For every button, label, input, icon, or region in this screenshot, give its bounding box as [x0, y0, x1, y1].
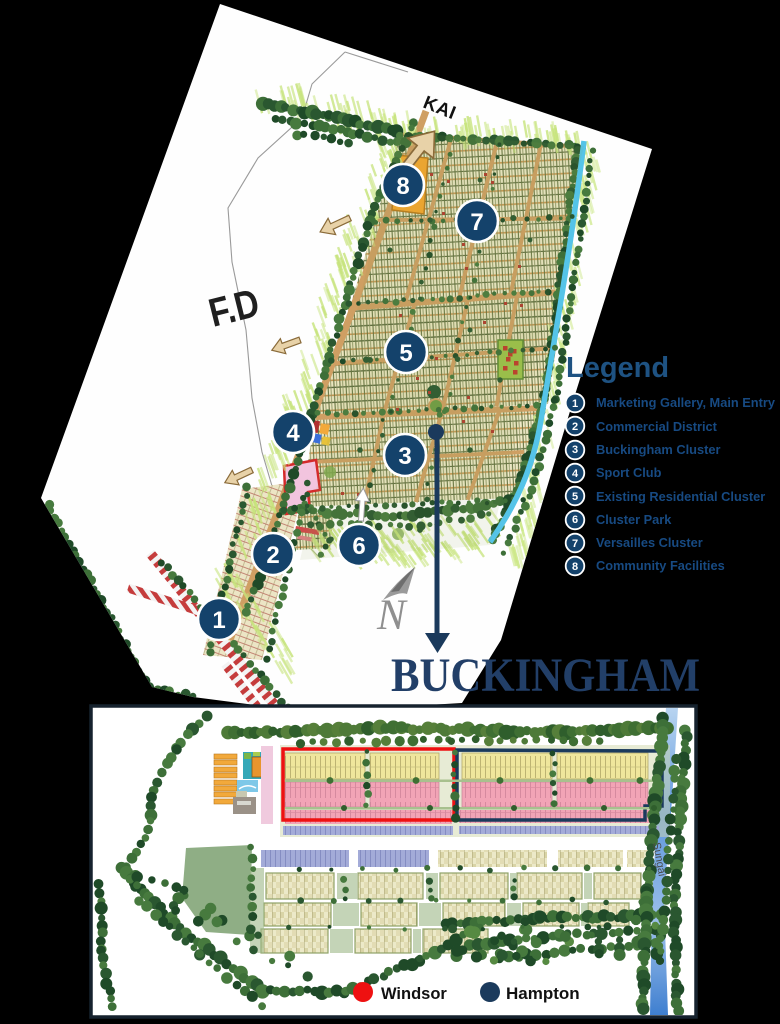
svg-text:4: 4 — [286, 420, 300, 447]
svg-text:Legend: Legend — [566, 352, 669, 384]
svg-text:1: 1 — [572, 398, 578, 410]
svg-text:Windsor: Windsor — [381, 985, 447, 1003]
svg-text:5: 5 — [572, 491, 578, 503]
svg-text:6: 6 — [352, 533, 365, 560]
svg-text:8: 8 — [572, 561, 578, 573]
svg-text:7: 7 — [470, 209, 483, 236]
svg-text:6: 6 — [572, 514, 578, 526]
svg-text:8: 8 — [396, 173, 409, 200]
svg-text:Cluster Park: Cluster Park — [596, 512, 672, 527]
svg-text:Sport Club: Sport Club — [596, 465, 662, 480]
svg-text:BUCKINGHAM: BUCKINGHAM — [391, 649, 700, 702]
svg-text:Hampton: Hampton — [506, 984, 580, 1003]
svg-text:2: 2 — [572, 421, 578, 433]
svg-text:4: 4 — [572, 468, 579, 480]
svg-text:3: 3 — [572, 444, 578, 456]
svg-text:Community Facilities: Community Facilities — [596, 558, 725, 573]
svg-text:Existing Residential Cluster: Existing Residential Cluster — [596, 489, 765, 504]
svg-text:5: 5 — [399, 340, 412, 367]
svg-text:Commercial District: Commercial District — [596, 419, 718, 434]
svg-text:3: 3 — [398, 443, 411, 470]
svg-text:N: N — [376, 592, 408, 639]
svg-text:Versailles Cluster: Versailles Cluster — [596, 535, 703, 550]
svg-text:2: 2 — [266, 542, 279, 569]
svg-text:1: 1 — [212, 607, 225, 634]
svg-text:Buckingham Cluster: Buckingham Cluster — [596, 442, 720, 457]
svg-text:7: 7 — [572, 538, 578, 550]
svg-text:Marketing Gallery, Main Entry: Marketing Gallery, Main Entry — [596, 395, 776, 410]
